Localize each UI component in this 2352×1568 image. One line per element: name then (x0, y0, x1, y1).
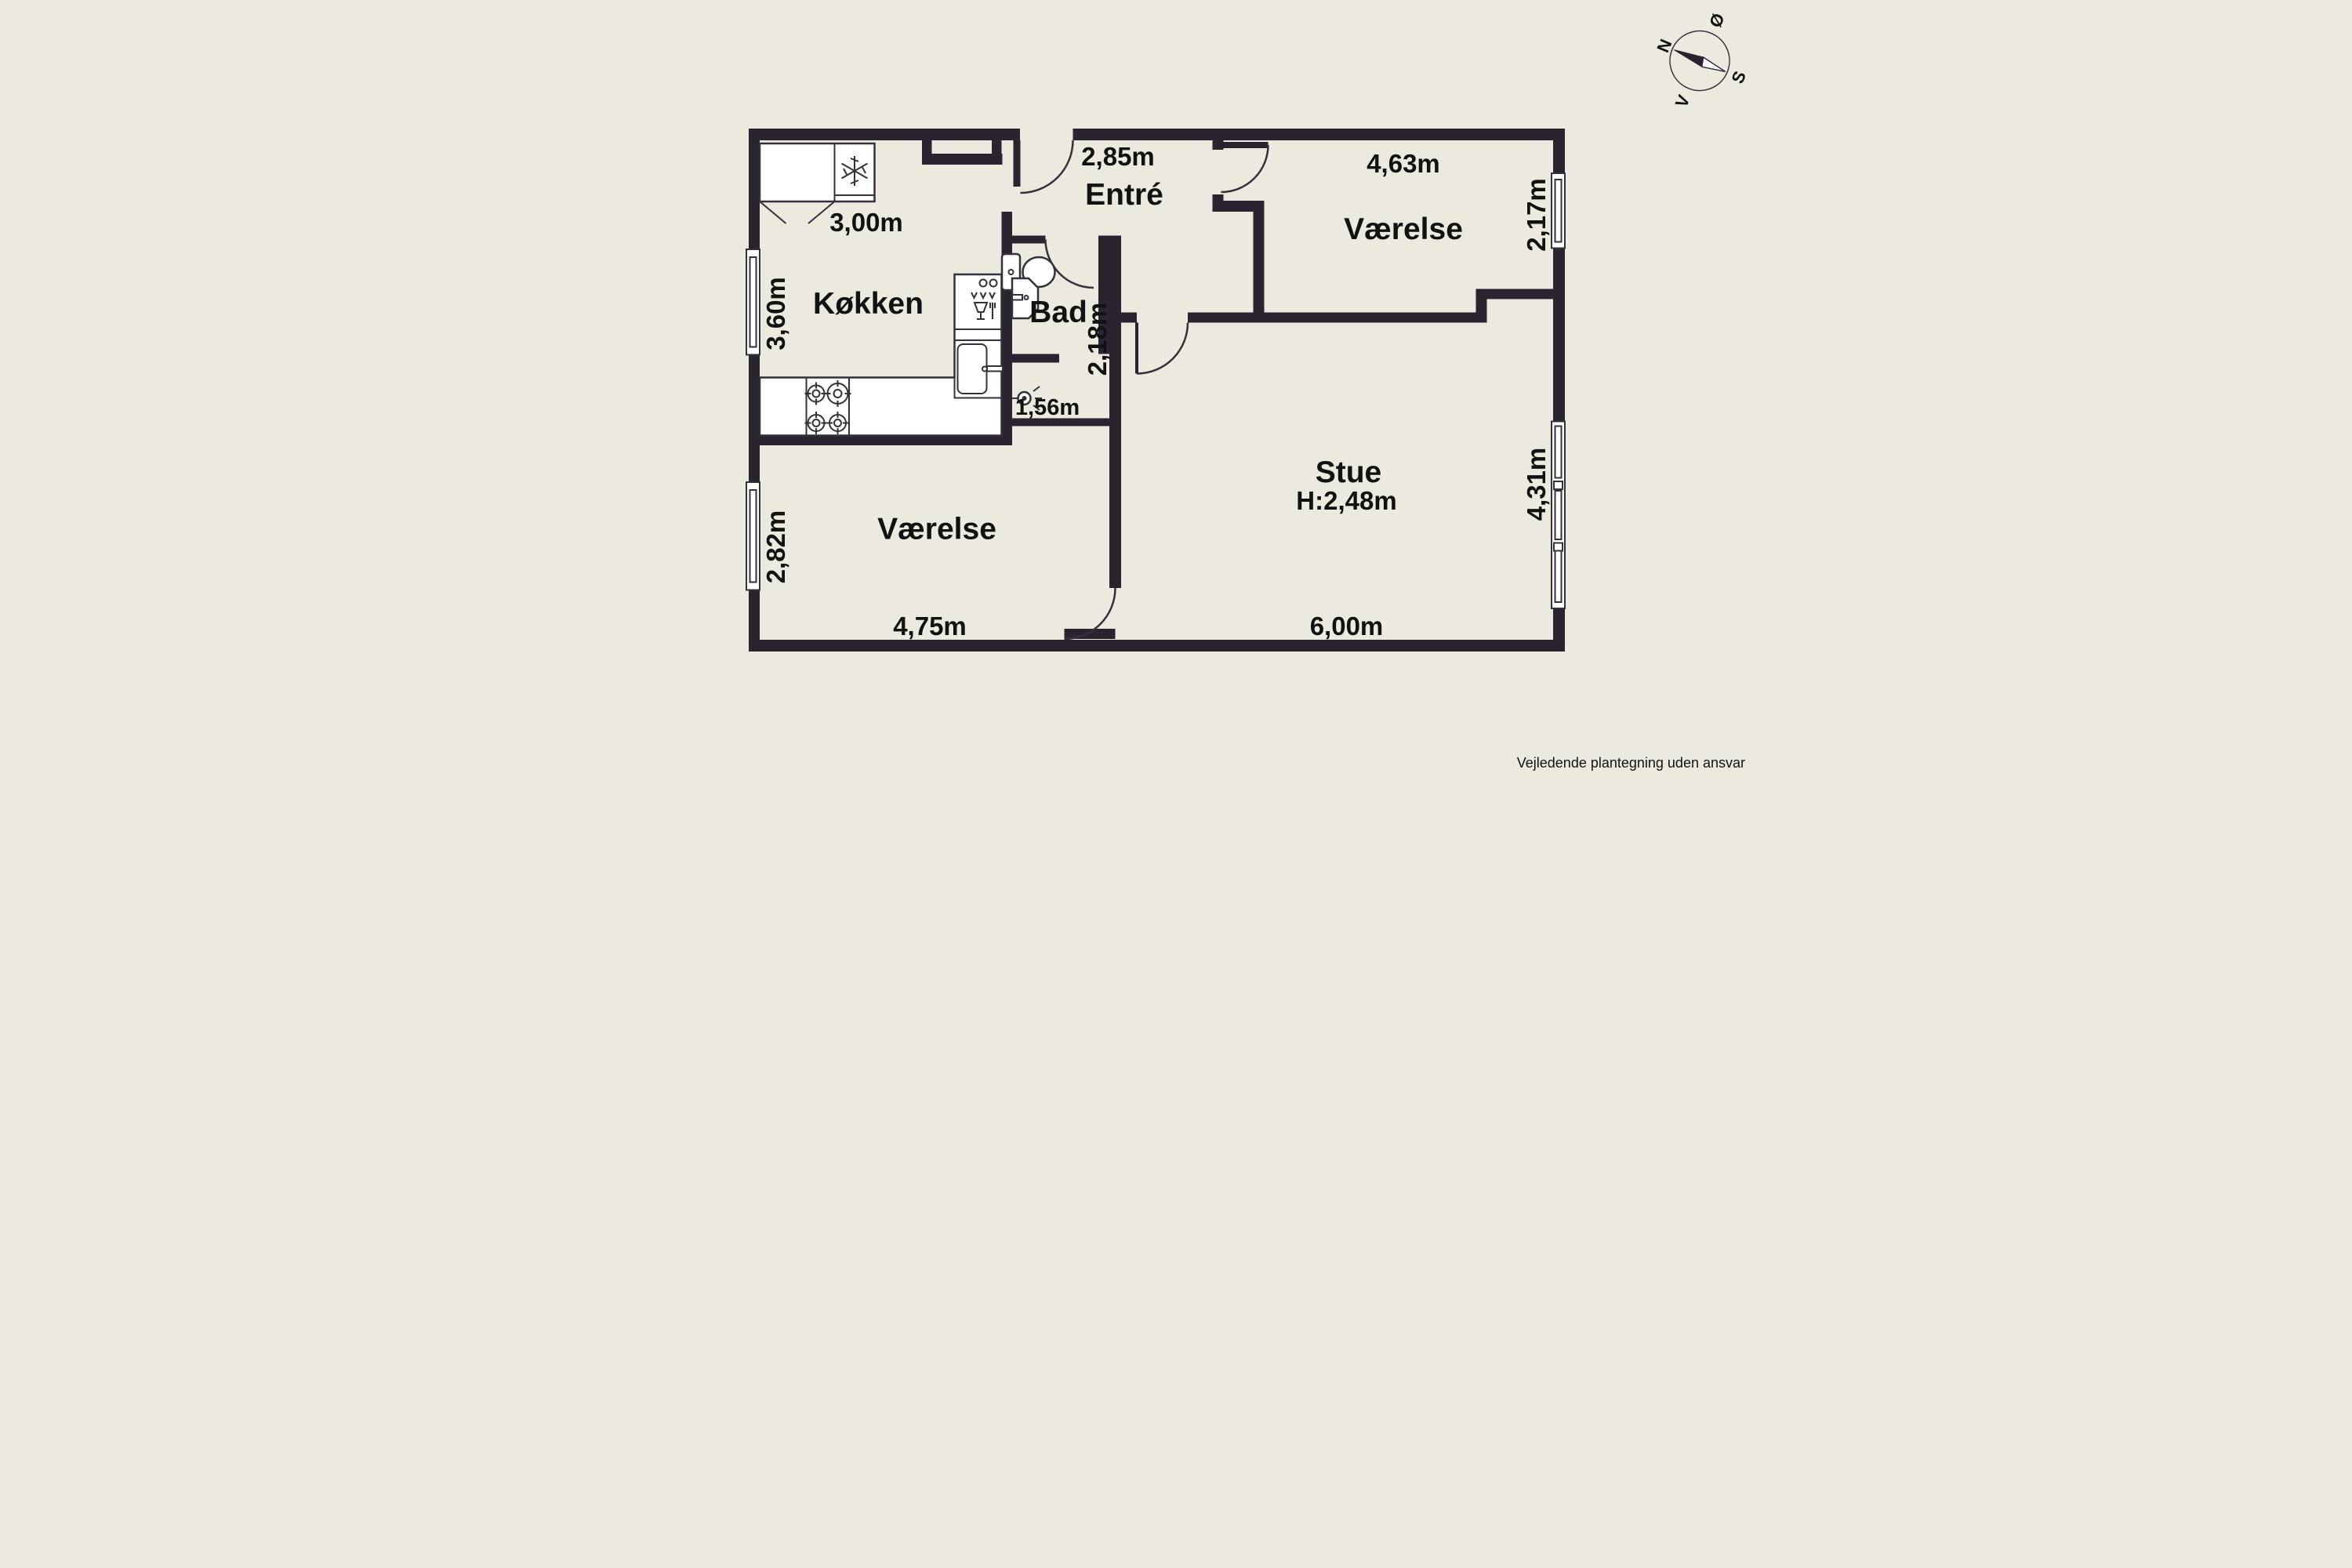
dim-stue-bottom: 6,00m (1310, 612, 1384, 641)
dim-bad-right: 2,18m (1083, 303, 1112, 376)
label-vaerelse-ne: Værelse (1344, 212, 1463, 246)
dim-entre-top: 2,85m (1081, 142, 1155, 171)
dim-alcove: 1,56m (1015, 395, 1080, 420)
window-vaerelse-sw (746, 482, 760, 590)
window-stue (1552, 422, 1565, 609)
dim-koekken-left: 3,60m (761, 277, 790, 350)
dim-koekken-top: 3,00m (829, 208, 903, 237)
window-kitchen (746, 249, 760, 355)
label-bad: Bad (1029, 296, 1087, 329)
label-vaerelse-sw: Værelse (877, 513, 996, 546)
label-stue: Stue (1316, 456, 1382, 489)
dim-vaerelse-sw-bottom: 4,75m (893, 612, 967, 641)
floor-plan-page: 3,00m Køkken 3,60m 2,85m Entré Bad 2,18m… (588, 0, 1764, 784)
dim-vaerelse-sw-left: 2,82m (761, 510, 790, 584)
disclaimer-text: Vejledende plantegning uden ansvar (1517, 755, 1745, 771)
dim-vaerelse-ne-right: 2,17m (1522, 178, 1551, 252)
dim-stue-right: 4,31m (1522, 448, 1551, 521)
label-koekken: Køkken (813, 287, 924, 321)
window-vaerelse-ne (1552, 173, 1565, 249)
label-entre: Entré (1085, 178, 1163, 212)
floor-plan-drawing: 3,00m Køkken 3,60m 2,85m Entré Bad 2,18m… (588, 0, 1764, 784)
dim-vaerelse-ne-top: 4,63m (1367, 149, 1440, 178)
dim-stue-ceiling: H:2,48m (1296, 486, 1396, 515)
